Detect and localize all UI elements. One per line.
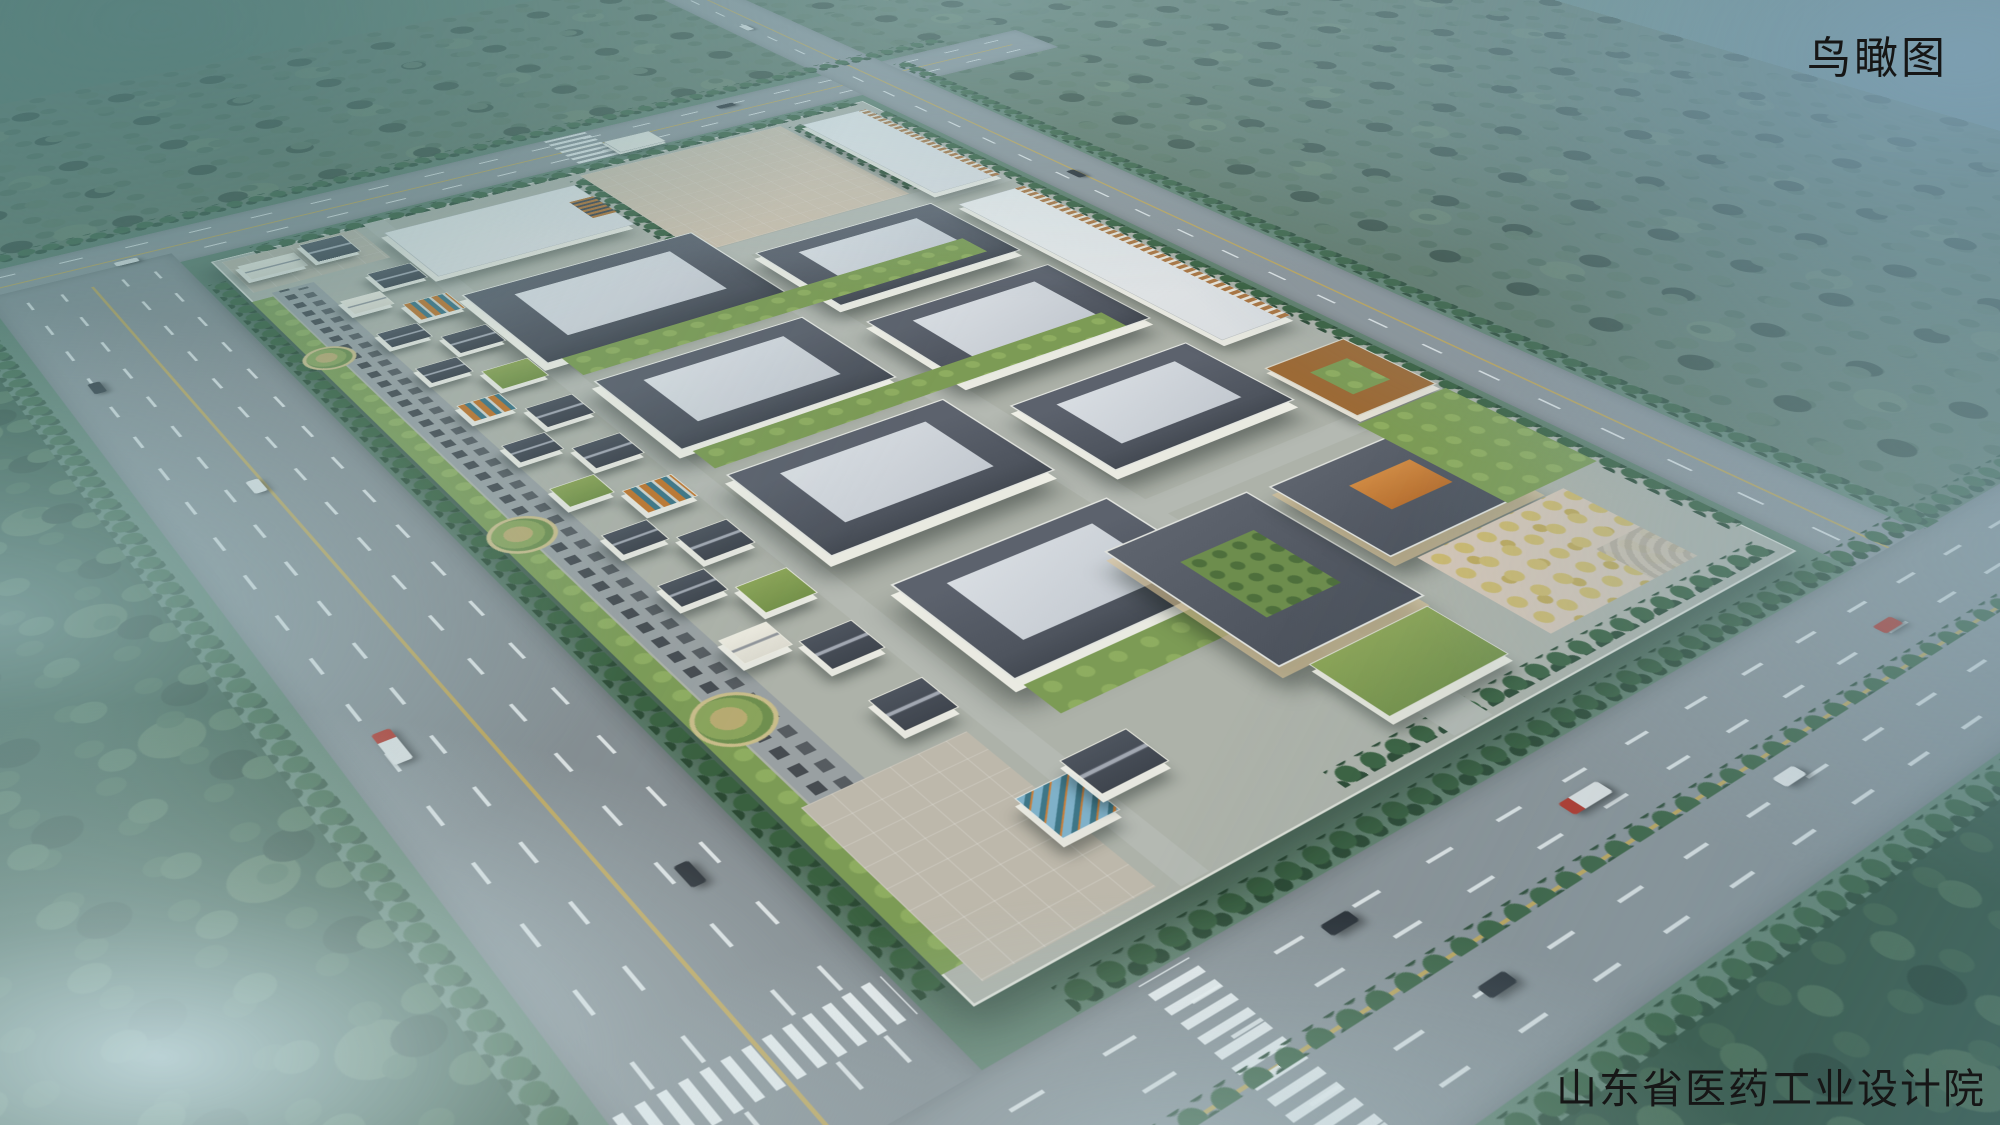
aerial-rendering: 鸟瞰图 山东省医药工业设计院 xyxy=(0,0,2000,1125)
design-institute-credit: 山东省医药工业设计院 xyxy=(1556,1055,1986,1115)
view-title: 鸟瞰图 xyxy=(1807,22,1948,86)
inner-garden xyxy=(1310,358,1390,394)
inner-garden xyxy=(1181,530,1341,617)
ground-plane xyxy=(0,0,2000,767)
orange-courtyard xyxy=(1349,459,1453,509)
